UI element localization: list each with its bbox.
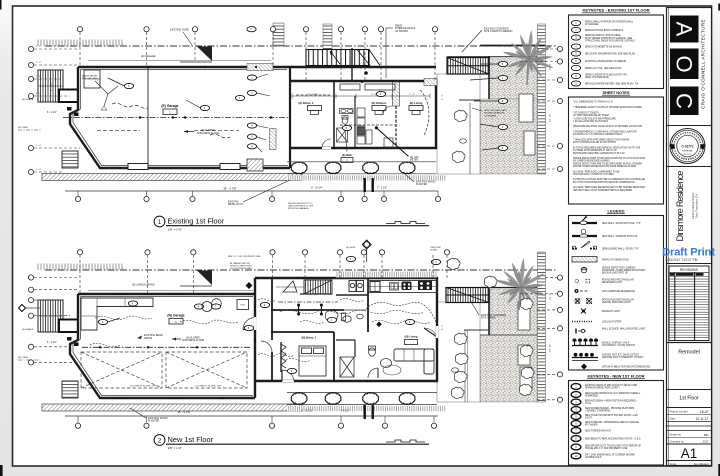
svg-text:* TEMPERED SAFETY GLASS AT SHO: * TEMPERED SAFETY GLASS AT SHOWER DOOR E… xyxy=(573,106,642,109)
svg-text:ROUND AND RECTANGULAR: ROUND AND RECTANGULAR xyxy=(602,278,634,281)
svg-text:C: C xyxy=(672,93,697,109)
svg-text:(E) GAS: (E) GAS xyxy=(410,156,419,159)
svg-text:DUPLEX OUTLET / QUAD OUTLET: DUPLEX OUTLET / QUAD OUTLET xyxy=(602,353,640,356)
svg-text:SMOKE DETECTORS TO BE INSTALLE: SMOKE DETECTORS TO BE INSTALLED/LINK TO … xyxy=(573,157,645,160)
svg-text:(E) Bdrm. 1: (E) Bdrm. 1 xyxy=(299,101,314,105)
svg-text:(N) Bdrm. 1: (N) Bdrm. 1 xyxy=(301,336,317,340)
svg-text:CONCRETE FLOOR: CONCRETE FLOOR xyxy=(182,339,205,342)
svg-text:KEYNOTES - EXISTING 1ST FLOOR: KEYNOTES - EXISTING 1ST FLOOR xyxy=(583,8,650,13)
svg-text:NEW TURNED AIR UNIT: NEW TURNED AIR UNIT xyxy=(585,429,611,432)
svg-text:New 1st Floor: New 1st Floor xyxy=(168,435,214,444)
svg-text:2'-8 1/2": 2'-8 1/2" xyxy=(341,409,350,412)
svg-text:(E) CURB: (E) CURB xyxy=(18,127,28,129)
svg-text:W/ TRELLIS ABOVE: W/ TRELLIS ABOVE xyxy=(484,112,505,115)
svg-text:9' - 0": 9' - 0" xyxy=(36,145,41,147)
svg-text:AREA .ITS DRAINAGE: AREA .ITS DRAINAGE xyxy=(585,76,609,79)
svg-text:GFCI LAMP/LINE REFERENCE: GFCI LAMP/LINE REFERENCE xyxy=(602,290,635,293)
svg-text:BY A PHOTOCONTROL/MOTION SENSO: BY A PHOTOCONTROL/MOTION SENSOR COMBINAT… xyxy=(573,181,635,184)
svg-text:14' - 6": 14' - 6" xyxy=(550,293,552,300)
svg-text:Existing 1st Floor: Existing 1st Floor xyxy=(168,217,225,226)
svg-text:SINGLE / DUPLEX / HALF: SINGLE / DUPLEX / HALF xyxy=(602,341,630,344)
svg-text:GASPED N.R.D.: GASPED N.R.D. xyxy=(585,456,602,459)
svg-text:A1: A1 xyxy=(681,446,698,461)
svg-text:3/4" LONG SHEAR WALL AT CORNER: 3/4" LONG SHEAR WALL AT CORNER SHOWN xyxy=(585,453,635,456)
svg-text:* ALL DIMENSIONS TO FINISH U.O: * ALL DIMENSIONS TO FINISH U.O.N. xyxy=(573,101,614,104)
svg-text:As indicated: As indicated xyxy=(694,462,709,466)
svg-text:Remodel: Remodel xyxy=(678,350,700,356)
svg-text:STRUCTURAL DWGS FOR UPDATE / D: STRUCTURAL DWGS FOR UPDATE / DETAILS xyxy=(585,40,635,43)
svg-text:METER: METER xyxy=(410,160,418,162)
svg-text:Checked by: Checked by xyxy=(670,439,685,443)
svg-text:7' - 2 1/2": 7' - 2 1/2" xyxy=(377,186,387,189)
svg-text:PENDANT LIGHT: PENDANT LIGHT xyxy=(602,310,621,313)
svg-text:WITH CONTINUOUS AIR FLOW OPTIO: WITH CONTINUOUS AIR FLOW OPTION xyxy=(573,141,616,144)
svg-text:(E) Sidewalk: (E) Sidewalk xyxy=(141,54,156,58)
svg-text:Date: Date xyxy=(670,416,676,420)
svg-text:14' - 6": 14' - 6" xyxy=(550,63,552,70)
svg-text:O: O xyxy=(672,55,697,72)
svg-text:12.11.17: 12.11.17 xyxy=(696,417,709,421)
svg-text:(E) Living: (E) Living xyxy=(410,101,423,105)
svg-text:(E) CURB: (E) CURB xyxy=(18,357,28,359)
svg-text:PLANTER: PLANTER xyxy=(416,183,427,186)
svg-text:IN TOTES REQUIRES MECHANICAL V: IN TOTES REQUIRES MECHANICAL VENTILATION… xyxy=(573,147,641,150)
svg-text:CALIFORNIA: CALIFORNIA xyxy=(681,157,695,160)
svg-text:9' - 2": 9' - 2" xyxy=(442,324,444,330)
svg-text:DEMOLISHED WALL / DOOR, TYP: DEMOLISHED WALL / DOOR, TYP xyxy=(602,247,639,250)
svg-text:36' - 9 7/8": 36' - 9 7/8" xyxy=(177,410,190,414)
svg-text:1.28 GALLONS PER FLUSH MAX: 1.28 GALLONS PER FLUSH MAX xyxy=(573,120,609,123)
svg-text:HIGH EFFICACY IN BATHS / KITCH: HIGH EFFICACY IN BATHS / KITCHEN xyxy=(573,173,614,176)
svg-text:NEW WATER HEATER - PROVIDE PLA: NEW WATER HEATER - PROVIDE PLATFORM xyxy=(585,407,634,410)
svg-text:1/4" PER FT SLOPE, TYP: 1/4" PER FT SLOPE, TYP xyxy=(195,386,221,388)
svg-text:DAYLIGHT MIN 3'-0" OFF: DAYLIGHT MIN 3'-0" OFF xyxy=(288,205,314,208)
svg-text:AND WITH ARC FAULT INTERRUPTER: AND WITH ARC FAULT INTERRUPTERS AS REQUI… xyxy=(573,189,632,192)
svg-text:36' - 9 7/8": 36' - 9 7/8" xyxy=(223,186,236,190)
svg-text:AREAS OF DEMOLITION: AREAS OF DEMOLITION xyxy=(602,258,629,261)
svg-text:* AT CASEOUT TOILETS:: * AT CASEOUT TOILETS: xyxy=(573,112,600,115)
svg-text:8' - 0 1/2": 8' - 0 1/2" xyxy=(47,112,57,114)
svg-text:(E) LANDSCAPING: (E) LANDSCAPING xyxy=(132,283,155,287)
svg-text:EXISTING LANDSCAPING TO REMAIN: EXISTING LANDSCAPING TO REMAIN xyxy=(585,60,626,63)
svg-text:DEMO CONCRETE SLAB FLOOR TYP3: DEMO CONCRETE SLAB FLOOR TYP3 xyxy=(585,73,628,76)
svg-text:REPLACE WATER HEATER, SEE NEW: REPLACE WATER HEATER, SEE NEW PLAN / T/A xyxy=(585,82,639,85)
svg-text:BY OWNER: BY OWNER xyxy=(585,425,598,427)
svg-text:A: A xyxy=(672,22,697,37)
svg-text:NEW BEAM TO REPLACE EXISTING P: NEW BEAM TO REPLACE EXISTING POSTS - S.S… xyxy=(585,437,641,440)
svg-text:GROUND FAULT INTERRUPT OUTLET: GROUND FAULT INTERRUPT OUTLET xyxy=(602,356,644,359)
svg-text:AT GARAGE: AT GARAGE xyxy=(585,23,599,26)
svg-text:DEMO KITCHENETTE AS SHOWN: DEMO KITCHENETTE AS SHOWN xyxy=(585,45,622,48)
svg-text:CONCRETE FLOOR: CONCRETE FLOOR xyxy=(197,132,220,135)
svg-text:SPRING/GARDEN PER CLARITY: SPRING/GARDEN PER CLARITY xyxy=(585,387,620,390)
svg-text:Project number: Project number xyxy=(670,410,688,414)
svg-text:SHEET NOTES: SHEET NOTES xyxy=(603,90,630,95)
svg-text:(N) Living: (N) Living xyxy=(405,335,418,339)
svg-text:AT WASHPOINT W/: AT WASHPOINT W/ xyxy=(230,262,250,265)
svg-text:(E) GRADE: (E) GRADE xyxy=(22,98,34,101)
svg-text:REPLACE BEAM + NEW POSTS AS RE: REPLACE BEAM + NEW POSTS AS REQUIRED - xyxy=(585,399,637,402)
svg-text:8' - 2": 8' - 2" xyxy=(36,62,41,64)
svg-text:+ SEISMIC STRAPPING: + SEISMIC STRAPPING xyxy=(585,410,611,413)
svg-text:Draft Print: Draft Print xyxy=(662,247,715,259)
svg-text:6' - 1": 6' - 1" xyxy=(36,93,41,95)
svg-text:C-31771: C-31771 xyxy=(681,144,693,148)
svg-text:(E) GRADE: (E) GRADE xyxy=(22,328,34,331)
svg-text:2' - 6": 2' - 6" xyxy=(36,76,41,78)
svg-text:(N) Garage: (N) Garage xyxy=(167,314,184,318)
svg-text:EXIST'NG WALL/GATE: EXIST'NG WALL/GATE xyxy=(484,109,507,112)
svg-text:SITE STAIRS TO REMAIN: SITE STAIRS TO REMAIN xyxy=(484,30,513,33)
svg-text:OUTSIDE W/TR WINDOWS AT 100 T: OUTSIDE W/TR WINDOWS AT 100 TO IN xyxy=(573,149,617,152)
svg-text:NEW WALL / WINDOW WITH TAIL: NEW WALL / WINDOW WITH TAIL xyxy=(602,235,639,238)
svg-text:MONOXIDE - HARD WIRED W/ BATTE: MONOXIDE - HARD WIRED W/ BATTERY xyxy=(602,269,646,272)
svg-text:AT TRIM CENTERLINE OF TOILET: AT TRIM CENTERLINE OF TOILET xyxy=(573,114,610,117)
svg-text:1st Floor: 1st Floor xyxy=(679,396,699,402)
svg-text:POST ORDER SUPPORT AT GARAGE -: POST ORDER SUPPORT AT GARAGE - SEE xyxy=(585,37,633,40)
svg-text:3' - 6": 3' - 6" xyxy=(36,46,41,48)
svg-text:DATUM SYMBOL FOR HEIGHT DIMENS: DATUM SYMBOL FOR HEIGHT DIMENSIONS xyxy=(602,365,651,368)
svg-text:CEILING MOUNTED LIGHT: CEILING MOUNTED LIGHT xyxy=(602,302,631,304)
svg-text:JCO: JCO xyxy=(703,440,710,444)
svg-text:WITH THE GARAGE: WITH THE GARAGE xyxy=(288,207,309,210)
svg-text:SMOKE DETECTORS ARE TO BE (PR: SMOKE DETECTORS ARE TO BE (PROVIDED W/ F… xyxy=(573,162,642,165)
svg-text:SITE STAIRS: SITE STAIRS xyxy=(481,317,496,320)
svg-text:24' - 10": 24' - 10" xyxy=(550,344,552,352)
svg-text:4' - 3": 4' - 3" xyxy=(36,169,41,171)
svg-text:LIGHT: LIGHT xyxy=(585,418,592,420)
svg-text:8' - 0 1/2": 8' - 0 1/2" xyxy=(47,342,57,344)
svg-text:RENEWAL: RENEWAL xyxy=(682,150,694,153)
svg-text:AND BE INTERCONNECTED FOR SIMU: AND BE INTERCONNECTED FOR SIMULTANEOUS A… xyxy=(573,165,636,168)
svg-text:DEMO SMALL PORTION OF INTERIOR: DEMO SMALL PORTION OF INTERIOR WALL xyxy=(585,20,634,23)
svg-text:WALL SCONCE: WALL MOUNTED LIGH: WALL SCONCE: WALL MOUNTED LIGHT xyxy=(602,327,646,330)
svg-text:BACKUP LIKE FIRST LE: BACKUP LIKE FIRST LE xyxy=(602,272,628,275)
svg-text:DEMO GUY TAIL, SEE NEW PLAN: DEMO GUY TAIL, SEE NEW PLAN xyxy=(585,67,622,70)
svg-text:San Francisco CA: San Francisco CA xyxy=(695,194,699,218)
svg-text:PLANTER: PLANTER xyxy=(148,420,159,423)
svg-text:05-31-19: 05-31-19 xyxy=(683,154,692,156)
svg-text:TO REMAIN: TO REMAIN xyxy=(484,114,497,117)
svg-text:ROUND AND RECTANGULAR: ROUND AND RECTANGULAR xyxy=(602,298,634,301)
svg-text:(E) GATE: (E) GATE xyxy=(346,246,356,249)
svg-text:ALL NEW / REPLACED RECEPTACLES: ALL NEW / REPLACED RECEPTACLES TO BE TAM… xyxy=(573,186,646,189)
svg-text:AS CARBON MONOXIDE ALARMS: AS CARBON MONOXIDE ALARMS xyxy=(573,160,610,163)
svg-text:1/8" = 1'-0": 1/8" = 1'-0" xyxy=(168,446,183,450)
svg-text:* SHOWERHEADS 2.5 GPM MAX, KIT: * SHOWERHEADS 2.5 GPM MAX, KITCHEN AND L… xyxy=(573,131,638,134)
svg-text:NEW STORAGE / WORKSPACE AREA I: NEW STORAGE / WORKSPACE AREA IN GARAGE xyxy=(585,421,639,424)
svg-text:NEW WALL / DOOR WITH TAIL, TYP: NEW WALL / DOOR WITH TAIL, TYP xyxy=(602,222,641,225)
svg-text:EXISTING NEON AT MID FLOOR TO: EXISTING NEON AT MID FLOOR TO REAR YARD xyxy=(585,384,638,387)
svg-text:* TANKLESS WTR/HTR GREEN SELEC: * TANKLESS WTR/HTR GREEN SELECT BATH FAN… xyxy=(573,139,630,142)
svg-text:(E) Garage: (E) Garage xyxy=(161,104,178,108)
svg-text:24' - 10": 24' - 10" xyxy=(550,114,552,122)
svg-text:SMOKE DETECTOR / CARBON: SMOKE DETECTOR / CARBON xyxy=(602,266,636,269)
svg-text:CRAIG O'CONNELL ARCHITECTURE: CRAIG O'CONNELL ARCHITECTURE xyxy=(701,19,706,109)
svg-text:* LOW FLOW TOILETS W/M PRESSUR: * LOW FLOW TOILETS W/M PRESSURE: xyxy=(573,119,617,121)
svg-text:AS SHOWN: AS SHOWN xyxy=(395,30,408,33)
svg-text:Dinsmore Residence: Dinsmore Residence xyxy=(675,171,685,242)
svg-text:GUY EXTERIOR WALL: GUY EXTERIOR WALL xyxy=(230,267,254,270)
svg-text:NEW DRYER DUCT TO DAYLIGHT AT: NEW DRYER DUCT TO DAYLIGHT AT EXTERIOR O… xyxy=(585,444,642,447)
svg-text:REMOVE PARTIAL STRUCTURAL: REMOVE PARTIAL STRUCTURAL xyxy=(585,34,622,37)
svg-text:BATHROOMS REQUIRE 4 WINDOWS AT: BATHROOMS REQUIRE 4 WINDOWS AT 50 T-00 xyxy=(573,152,625,155)
svg-text:RELOCATE WASHER/DRYER, SEE NEW: RELOCATE WASHER/DRYER, SEE NEW PLAN xyxy=(585,52,635,55)
svg-text:AND GAS LINES: AND GAS LINES xyxy=(82,77,99,80)
svg-text:REVISIONS: REVISIONS xyxy=(680,268,699,272)
svg-text:LEGEND: LEGEND xyxy=(608,209,625,214)
svg-text:W.H.: W.H. xyxy=(240,305,245,307)
svg-text:S.S.D.: S.S.D. xyxy=(585,403,592,405)
svg-text:Scale: Scale xyxy=(670,462,677,466)
svg-text:ALL NEW / REPLACED LUMINAIRES: ALL NEW / REPLACED LUMINAIRES TO BE xyxy=(573,170,620,173)
svg-text:OUTDOOR LIGHTING MUST BE FLUOR: OUTDOOR LIGHTING MUST BE FLUORESCENT OR … xyxy=(573,179,645,181)
svg-text:16-07: 16-07 xyxy=(700,410,709,414)
svg-text:LED LIGHT STRIP: LED LIGHT STRIP xyxy=(602,321,622,323)
svg-text:RECESSED LIGHT: RECESSED LIGHT xyxy=(602,282,623,284)
svg-text:KEYNOTES - NEW 1ST FLOOR: KEYNOTES - NEW 1ST FLOOR xyxy=(588,374,645,379)
svg-text:HOUSE MIN 3'-0" OFF PROPERTY: HOUSE MIN 3'-0" OFF PROPERTY LINE xyxy=(585,448,628,450)
svg-text:NEW GLASS WINDOW AT GUY WINDOW: NEW GLASS WINDOW AT GUY WINDOW OVERALL, xyxy=(585,392,641,395)
svg-text:1/31/2017 7:47:27 PM: 1/31/2017 7:47:27 PM xyxy=(666,258,698,262)
svg-text:OCCUPANCY / DOOR SWITCH: OCCUPANCY / DOOR SWITCH xyxy=(602,344,635,347)
svg-text:7' - 4": 7' - 4" xyxy=(409,94,415,96)
svg-text:EXISTING CURB: EXISTING CURB xyxy=(170,29,189,32)
svg-text:Drawn by: Drawn by xyxy=(670,433,682,437)
svg-text:9' - 2": 9' - 2" xyxy=(442,94,444,100)
svg-text:8' - 10 1/4": 8' - 10 1/4" xyxy=(311,186,323,189)
svg-text:DOWN: DOWN xyxy=(430,250,437,252)
svg-text:DEMO EXISTING BATH COMPLETE: DEMO EXISTING BATH COMPLETE xyxy=(585,29,624,32)
svg-text:ABOVE: ABOVE xyxy=(144,337,153,340)
svg-text:1/4" PER FT SLOPE, TYP: 1/4" PER FT SLOPE, TYP xyxy=(130,386,156,388)
svg-text:FAUCETS 1.8 / 1.5 GPM MAX, RES: FAUCETS 1.8 / 1.5 GPM MAX, RESPECTIVELY xyxy=(573,133,623,136)
svg-text:PRESSURE BALANCE VALVE ADJUST: PRESSURE BALANCE VALVE ADJUST AT SHOWER … xyxy=(573,125,643,128)
svg-text:8' - 10 1/2": 8' - 10 1/2" xyxy=(301,409,313,412)
svg-text:8' - 0 1/2": 8' - 0 1/2" xyxy=(51,82,53,91)
svg-text:METAL DUCT: METAL DUCT xyxy=(228,203,244,206)
svg-text:TEMPERED: TEMPERED xyxy=(585,396,598,398)
svg-text:(E) Kitchen: (E) Kitchen xyxy=(372,101,387,105)
svg-text:1/8" = 1'-0": 1/8" = 1'-0" xyxy=(168,227,183,231)
svg-text:NEW TOILET ROOM WITH POCKET DO: NEW TOILET ROOM WITH POCKET DOOR + LED xyxy=(585,415,638,417)
svg-text:(E) Bath: (E) Bath xyxy=(342,153,352,157)
svg-text:MIN. 3'-0" OFF PROPERTY LINE: MIN. 3'-0" OFF PROPERTY LINE xyxy=(228,256,261,258)
